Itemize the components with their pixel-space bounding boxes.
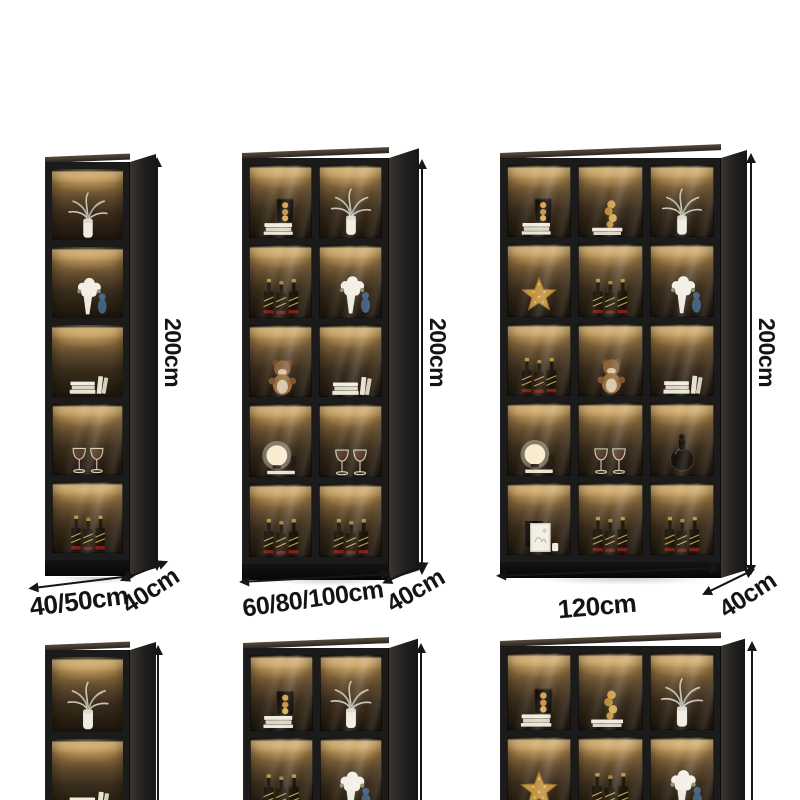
shelf-grid — [45, 162, 130, 560]
shelf-compartment — [507, 244, 571, 316]
shelf-compartment — [319, 165, 382, 238]
bottles-decor — [322, 501, 379, 556]
shelf-compartment — [250, 655, 313, 731]
plant-decor — [322, 181, 379, 236]
display-cabinet-60-100 — [242, 158, 389, 580]
bottles-decor — [253, 755, 309, 800]
shelf-compartment — [507, 483, 571, 555]
plant-decor — [323, 672, 379, 729]
books-decor-decor — [510, 670, 568, 728]
shelf-compartment — [52, 657, 123, 732]
glasses-decor — [322, 421, 379, 476]
shelf-compartment — [52, 325, 123, 396]
shelf-compartment — [249, 484, 312, 557]
shelf-compartment — [578, 324, 642, 396]
bottles-decor — [582, 754, 640, 800]
shelf-compartment — [319, 404, 382, 477]
books-decor-decor — [252, 181, 309, 236]
shelf-compartment — [507, 737, 571, 800]
books-decor-decor — [253, 672, 309, 729]
cabinet-side-panel — [389, 148, 419, 580]
cabinet-front — [243, 648, 389, 800]
height-dimension-arrow — [751, 650, 753, 800]
bear-decor — [252, 341, 309, 396]
shelf-compartment — [578, 483, 642, 555]
bottles-decor — [510, 340, 568, 395]
bottles-decor — [252, 501, 309, 556]
shelf-compartment — [249, 165, 312, 238]
floor-shadow — [494, 578, 752, 588]
shelf-compartment — [650, 737, 714, 800]
books-decor — [56, 755, 120, 800]
shelf-compartment — [578, 244, 642, 316]
flowers-decor — [653, 261, 711, 316]
shelf-compartment — [650, 324, 714, 396]
height-dimension-arrow — [156, 166, 158, 562]
books-gold-decor — [582, 181, 640, 236]
cabinet-side-panel — [721, 639, 745, 800]
height-dimension-label: 200cm — [753, 318, 780, 387]
plant-decor — [56, 185, 120, 239]
cabinet-side-panel — [130, 642, 156, 800]
books-gold-decor — [582, 670, 640, 728]
bear-decor — [582, 340, 640, 395]
cabinet-top — [500, 632, 721, 647]
height-dimension-label: 200cm — [159, 318, 186, 387]
flowers-decor — [653, 754, 711, 800]
bottles-decor — [582, 261, 640, 316]
shelf-compartment — [578, 737, 642, 800]
width-dimension-label: 120cm — [550, 587, 644, 626]
display-cabinet-40-50 — [45, 162, 130, 576]
cabinet-front — [500, 158, 721, 578]
starfish-decor — [510, 754, 568, 800]
shelf-compartment — [507, 403, 571, 475]
shelf-compartment — [319, 245, 382, 318]
shelf-compartment — [507, 324, 571, 396]
height-dimension-arrow — [750, 162, 752, 566]
shelf-grid — [500, 646, 721, 800]
bottles-decor — [252, 261, 309, 316]
shelf-compartment — [578, 165, 642, 237]
display-cabinet-40-50-bottom — [45, 650, 130, 800]
cabinet-top — [500, 144, 721, 159]
shelf-compartment — [52, 169, 123, 240]
bottles-decor — [653, 499, 711, 554]
shelf-compartment — [250, 738, 313, 800]
shelf-compartment — [650, 483, 714, 555]
cabinet-front — [45, 162, 130, 576]
books-decor — [322, 341, 379, 396]
shelf-compartment — [578, 403, 642, 475]
cabinet-side-panel — [130, 154, 156, 576]
plant-decor — [653, 670, 711, 728]
shelf-compartment — [249, 325, 312, 398]
decanter-decor — [653, 420, 711, 475]
frame-decor — [510, 499, 568, 554]
cabinet-front — [500, 646, 721, 800]
lamp-decor — [510, 420, 568, 475]
plant-decor — [56, 674, 120, 731]
shelf-compartment — [578, 653, 642, 730]
display-cabinet-120-bottom — [500, 646, 721, 800]
shelf-compartment — [319, 325, 382, 398]
shelf-grid — [45, 650, 130, 800]
lamp-decor — [252, 421, 309, 476]
shelf-grid — [242, 158, 389, 564]
shelf-compartment — [52, 404, 123, 475]
shelf-compartment — [52, 247, 123, 318]
bottles-decor — [56, 498, 120, 552]
books-decor-decor — [510, 181, 568, 236]
height-dimension-label: 200cm — [424, 318, 451, 387]
plant-decor — [653, 181, 711, 236]
cabinet-side-panel — [389, 639, 418, 800]
shelf-compartment — [320, 655, 383, 731]
flowers-decor — [323, 755, 379, 800]
shelf-grid — [500, 158, 721, 562]
books-decor — [653, 340, 711, 395]
cabinet-front — [45, 650, 130, 800]
shelf-compartment — [320, 738, 383, 800]
shelf-compartment — [249, 404, 312, 477]
height-dimension-arrow — [421, 168, 423, 566]
shelf-compartment — [249, 245, 312, 318]
books-decor — [56, 341, 120, 395]
cabinet-front — [242, 158, 389, 580]
shelf-compartment — [507, 653, 571, 730]
shelf-compartment — [507, 165, 571, 237]
product-dimension-image: 200cm 40/50cm 40cm 200cm 60/80/100cm 40c… — [0, 0, 800, 800]
starfish-decor — [510, 261, 568, 316]
height-dimension-arrow — [157, 654, 159, 800]
shelf-compartment — [650, 653, 714, 730]
glasses-decor — [582, 420, 640, 475]
shelf-compartment — [650, 244, 714, 316]
cabinet-base — [45, 560, 130, 576]
flowers-decor — [56, 263, 120, 317]
display-cabinet-120 — [500, 158, 721, 578]
shelf-compartment — [52, 482, 123, 553]
shelf-compartment — [650, 165, 714, 237]
glasses-decor — [56, 420, 120, 474]
height-dimension-arrow — [420, 652, 422, 800]
shelf-grid — [243, 648, 389, 800]
flowers-decor — [322, 261, 379, 316]
shelf-compartment — [319, 484, 382, 557]
shelf-compartment — [650, 403, 714, 475]
bottles-decor — [582, 499, 640, 554]
display-cabinet-60-100-bottom — [243, 648, 389, 800]
cabinet-side-panel — [721, 150, 747, 578]
shelf-compartment — [52, 739, 123, 800]
